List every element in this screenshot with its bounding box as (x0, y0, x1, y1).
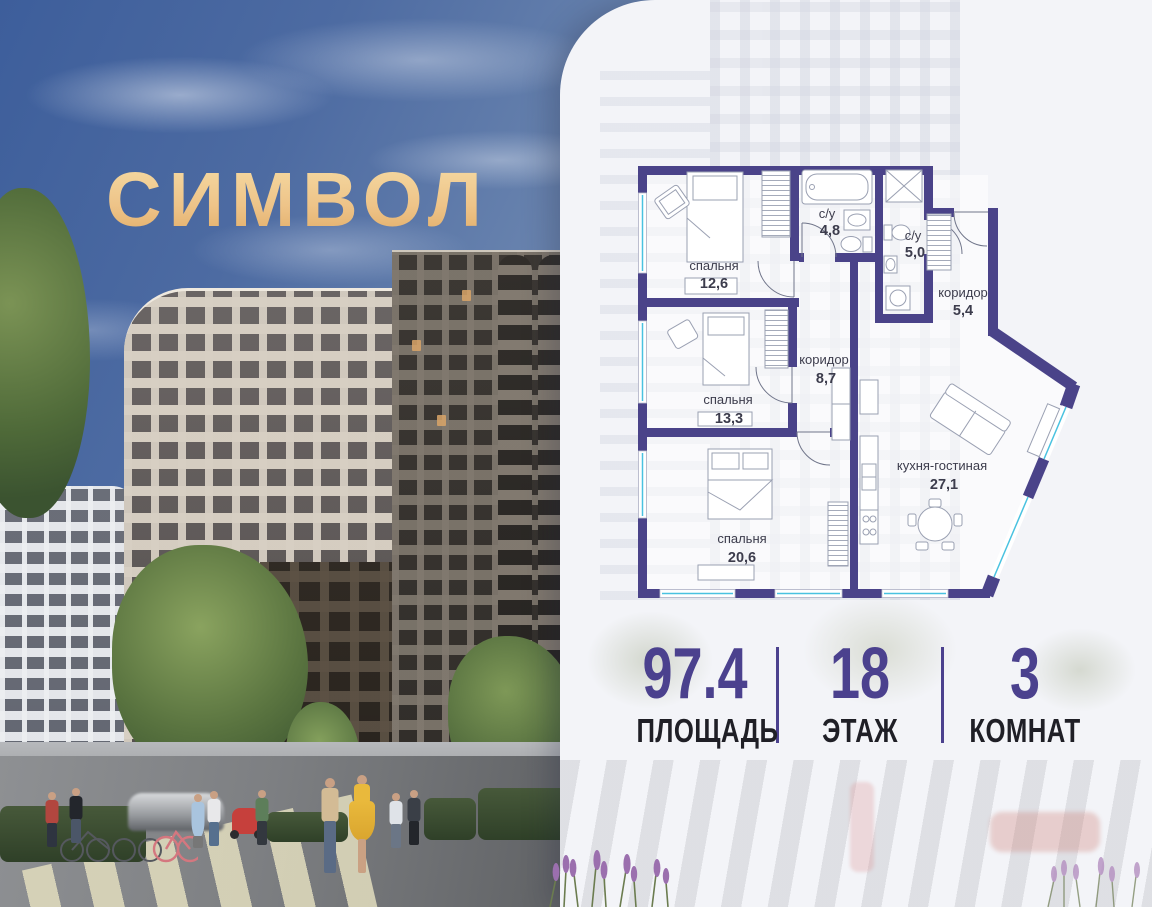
apartment-stats: 97.4 ПЛОЩАДЬ 18 ЭТАЖ 3 КОМНАТ (620, 642, 1100, 747)
stat-rooms-label: КОМНАТ (967, 715, 1084, 747)
stat-floor-value: 18 (804, 642, 917, 706)
stat-floor-label: ЭТАЖ (802, 715, 919, 747)
ghost-car (990, 812, 1100, 852)
room-area: 5,0 (905, 245, 925, 261)
room-area: 12,6 (700, 276, 728, 292)
hedge (424, 798, 476, 840)
room-name: с/у (819, 206, 836, 221)
hedge (478, 788, 570, 840)
room-name: спальня (689, 258, 738, 273)
bay-window-column (498, 255, 532, 675)
room-name: спальня (703, 392, 752, 407)
stats-divider (941, 647, 944, 743)
room-area: 20,6 (728, 550, 756, 566)
brand-logo: СИМВОЛ (106, 156, 506, 245)
ghost-pedestrian (850, 782, 874, 872)
room-area: 8,7 (816, 371, 836, 387)
info-panel: спальня 12,6 с/у 4,8 с/у 5,0 коридор 5,4… (560, 0, 1152, 907)
stat-rooms-value: 3 (969, 642, 1082, 706)
room-area: 13,3 (715, 411, 743, 427)
room-area: 27,1 (930, 477, 958, 493)
room-name: коридор (799, 352, 849, 367)
stat-area: 97.4 ПЛОЩАДЬ (620, 642, 770, 747)
lit-window (437, 415, 446, 426)
lit-window (462, 290, 471, 301)
listing-card: спальня 12,6 с/у 4,8 с/у 5,0 коридор 5,4… (0, 0, 1152, 907)
room-name: с/у (905, 228, 922, 243)
stat-area-value: 97.4 (639, 642, 752, 706)
room-name: кухня-гостиная (897, 458, 987, 473)
stat-area-label: ПЛОЩАДЬ (637, 715, 754, 747)
room-name: коридор (938, 285, 988, 300)
room-area: 5,4 (953, 303, 973, 319)
floor-plan: спальня 12,6 с/у 4,8 с/у 5,0 коридор 5,4… (630, 158, 1112, 610)
room-name: спальня (717, 531, 766, 546)
stat-floor: 18 ЭТАЖ (785, 642, 935, 747)
room-area: 4,8 (820, 223, 840, 239)
stat-rooms: 3 КОМНАТ (950, 642, 1100, 747)
lit-window (412, 340, 421, 351)
